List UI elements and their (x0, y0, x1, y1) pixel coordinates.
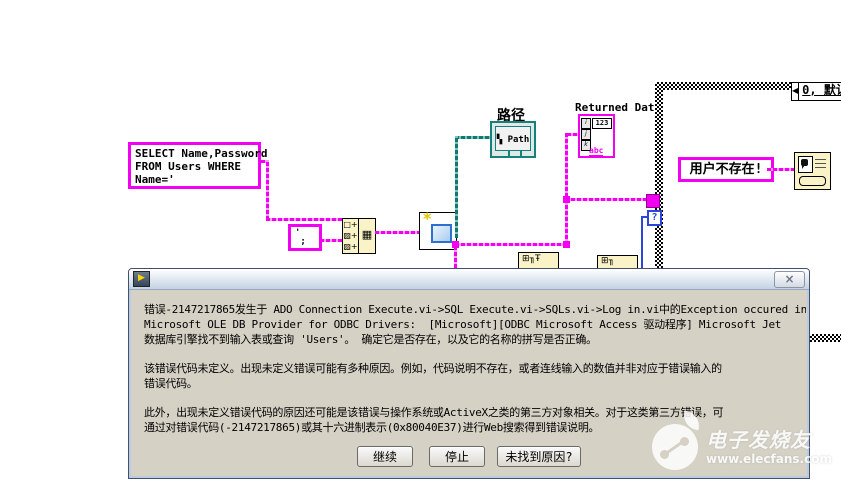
wire-segment (767, 168, 794, 171)
dialog-image-icon (798, 156, 813, 173)
case-structure-left-border[interactable] (655, 82, 663, 268)
wire-segment (455, 243, 568, 246)
wire-junction (452, 241, 459, 248)
hidden-vi-node[interactable]: ⊞╖ (597, 255, 638, 268)
reason-not-found-button[interactable]: 未找到原因? (497, 446, 581, 467)
wire-segment (455, 136, 490, 139)
wire-segment (266, 160, 269, 220)
wire-segment (455, 136, 458, 238)
path-glyph-icon: ▚ (497, 135, 502, 145)
wire-segment (641, 216, 643, 268)
error-undefined-paragraph: 该错误代码未定义。出现未定义错误可能有多种原因。例如，代码说明不存在，或者连线输… (144, 361, 796, 391)
elecfans-logo-icon (652, 424, 698, 470)
stop-button[interactable]: 停止 (429, 446, 485, 467)
wire-junction (563, 196, 570, 203)
abc-tag-icon: abc (589, 146, 603, 156)
labview-block-diagram: SELECT Name,Password FROM Users WHERE Na… (0, 0, 841, 486)
numeric-123-icon: 123 (592, 118, 612, 129)
text-line-icon (815, 159, 826, 160)
close-button[interactable]: × (774, 271, 805, 288)
continue-button[interactable]: 继续 (357, 446, 413, 467)
index-j: j (581, 129, 591, 140)
watermark-title: 电子发烧友 (706, 428, 832, 452)
concat-output-glyph: ▦ (359, 219, 375, 253)
case-selector-terminal[interactable]: ? (647, 210, 662, 226)
quote-string-constant[interactable]: ' ; (288, 224, 322, 251)
wire-segment (565, 198, 646, 201)
elecfans-watermark: 电子发烧友 www.elecfans.com (652, 424, 832, 470)
path-control-display: ▚ Path (495, 126, 531, 151)
ok-button-icon (799, 176, 826, 186)
wire-junction (563, 241, 570, 248)
case-selector-label[interactable]: ◀ 0, 默认 (791, 82, 841, 101)
wire-segment (565, 133, 568, 245)
text-line-icon (815, 163, 826, 164)
index-i: i (581, 118, 591, 129)
case-structure-bottom-border[interactable] (810, 334, 841, 342)
returned-date-label: Returned Date (575, 101, 661, 114)
case-tunnel[interactable] (646, 194, 660, 208)
concatenate-strings-node[interactable]: □+ ▨+ ▨+ ▦ (342, 218, 376, 254)
wire-segment (266, 218, 342, 221)
wire-segment (320, 239, 342, 242)
case-prev-arrow-icon[interactable]: ◀ (792, 83, 799, 100)
user-not-exist-constant[interactable]: 用户不存在! (678, 157, 774, 182)
concat-inputs: □+ ▨+ ▨+ (343, 219, 359, 253)
one-button-dialog-node[interactable] (794, 152, 831, 190)
spark-icon: * (423, 211, 431, 227)
hidden-vi-node[interactable]: ⊞╖Ŧ (518, 252, 559, 268)
returned-date-indicator[interactable]: i j k 123 abc (578, 114, 615, 158)
path-control[interactable]: ▚ Path (490, 121, 536, 158)
watermark-url: www.elecfans.com (706, 452, 832, 466)
dialog-title-bar[interactable]: ▶ × (129, 269, 809, 290)
wire-segment (567, 133, 578, 136)
window-icon (431, 224, 452, 243)
text-line-icon (815, 167, 826, 168)
labview-app-icon: ▶ (133, 271, 150, 287)
error-message-paragraph: 错误-2147217865发生于 ADO Connection Execute.… (144, 302, 796, 347)
path-notch (508, 151, 522, 158)
sql-string-constant[interactable]: SELECT Name,Password FROM Users WHERE Na… (128, 142, 261, 189)
wire-segment (375, 231, 419, 234)
case-selector-value: 0, 默认 (799, 83, 841, 100)
